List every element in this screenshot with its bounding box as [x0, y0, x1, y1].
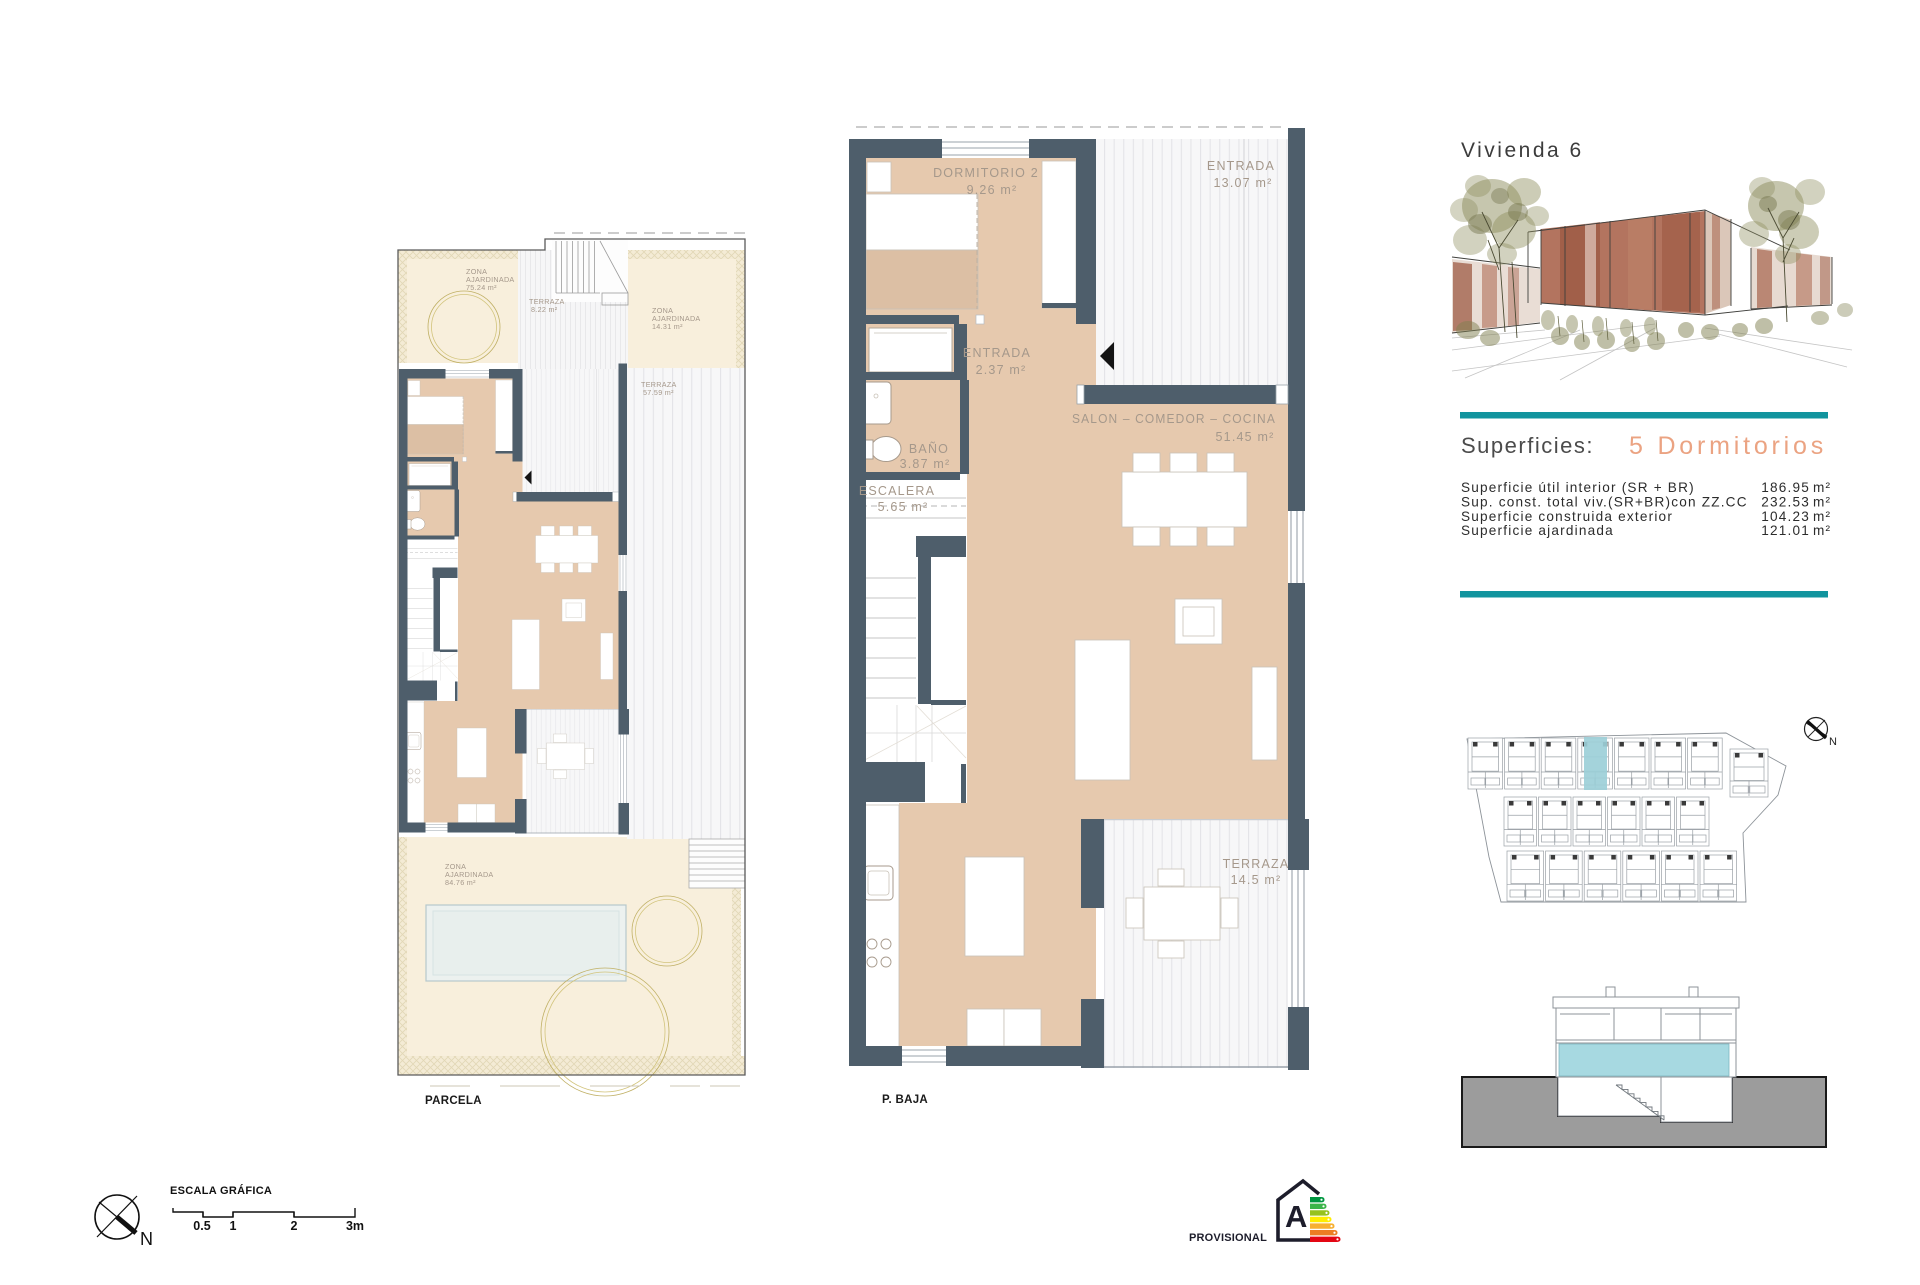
- svg-text:m²: m²: [1813, 523, 1831, 538]
- svg-text:DORMITORIO 2: DORMITORIO 2: [933, 166, 1039, 180]
- svg-text:Superficie construida exteri: Superficie construida exterior: [1461, 509, 1673, 524]
- svg-text:9.26 m²: 9.26 m²: [967, 183, 1018, 197]
- svg-text:2.37 m²: 2.37 m²: [976, 363, 1027, 377]
- svg-text:14.31 m²: 14.31 m²: [652, 322, 683, 331]
- svg-text:ENTRADA: ENTRADA: [1207, 159, 1275, 173]
- svg-text:P. BAJA: P. BAJA: [882, 1094, 928, 1106]
- svg-text:121.01: 121.01: [1761, 523, 1810, 538]
- svg-text:186.95: 186.95: [1761, 480, 1810, 495]
- svg-text:ESCALA GRÁFICA: ESCALA GRÁFICA: [170, 1184, 272, 1197]
- svg-text:14.5 m²: 14.5 m²: [1231, 873, 1282, 887]
- svg-text:57.59 m²: 57.59 m²: [643, 388, 674, 397]
- svg-text:0.5: 0.5: [193, 1219, 210, 1233]
- svg-text:3m: 3m: [346, 1219, 364, 1233]
- svg-text:5.65 m²: 5.65 m²: [878, 500, 929, 514]
- svg-text:Superficie útil interior (SR: Superficie útil interior (SR + BR): [1461, 480, 1695, 495]
- svg-text:PROVISIONAL: PROVISIONAL: [1189, 1232, 1267, 1244]
- svg-text:5 Dormitorios: 5 Dormitorios: [1629, 432, 1827, 460]
- svg-text:232.53: 232.53: [1761, 494, 1810, 509]
- svg-text:BAÑO: BAÑO: [909, 442, 949, 456]
- svg-text:ESCALERA: ESCALERA: [859, 484, 935, 498]
- svg-text:Superficie ajardinada: Superficie ajardinada: [1461, 523, 1614, 538]
- svg-text:N: N: [140, 1229, 153, 1249]
- svg-text:3.87 m²: 3.87 m²: [900, 457, 951, 471]
- svg-text:m²: m²: [1813, 509, 1831, 524]
- svg-text:m²: m²: [1813, 494, 1831, 509]
- svg-text:75.24 m²: 75.24 m²: [466, 283, 497, 292]
- svg-text:PARCELA: PARCELA: [425, 1095, 482, 1107]
- svg-text:84.76 m²: 84.76 m²: [445, 878, 476, 887]
- svg-text:N: N: [1829, 736, 1837, 748]
- svg-text:13.07 m²: 13.07 m²: [1214, 176, 1273, 190]
- svg-text:m²: m²: [1813, 480, 1831, 495]
- svg-text:ENTRADA: ENTRADA: [963, 346, 1031, 360]
- svg-text:2: 2: [291, 1219, 298, 1233]
- svg-text:Sup. const. total viv.(SR+B: Sup. const. total viv.(SR+BR)con ZZ.CC: [1461, 494, 1748, 509]
- svg-text:Vivienda 6: Vivienda 6: [1461, 139, 1584, 162]
- svg-text:51.45 m²: 51.45 m²: [1216, 430, 1275, 444]
- svg-text:104.23: 104.23: [1761, 509, 1810, 524]
- svg-text:Superficies:: Superficies:: [1461, 433, 1594, 458]
- svg-text:1: 1: [230, 1219, 237, 1233]
- svg-text:TERRAZA: TERRAZA: [1223, 857, 1290, 871]
- svg-text:8.22 m²: 8.22 m²: [531, 305, 558, 314]
- svg-text:A: A: [1285, 1199, 1307, 1234]
- svg-text:SALON – COMEDOR – COCINA: SALON – COMEDOR – COCINA: [1072, 412, 1276, 426]
